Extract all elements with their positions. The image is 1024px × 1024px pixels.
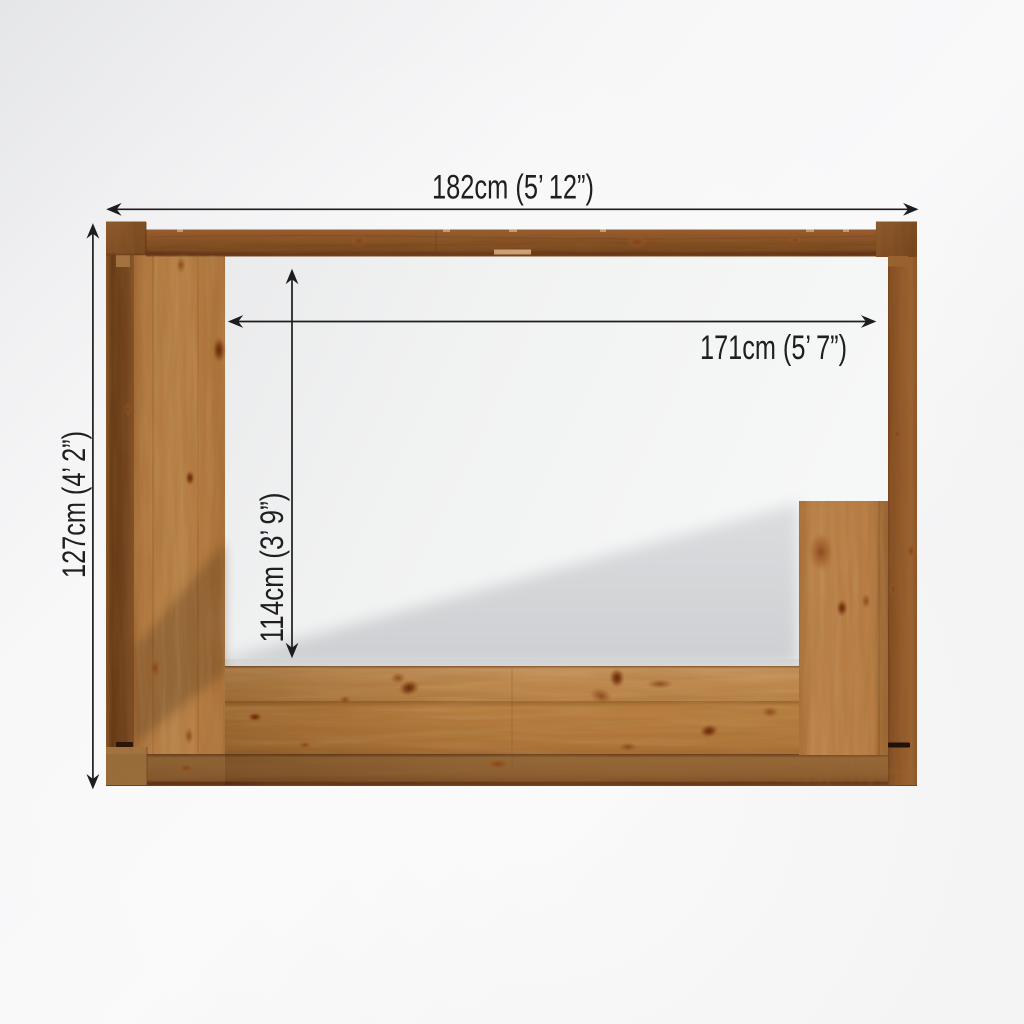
svg-text:114cm (3’ 9”): 114cm (3’ 9”)	[254, 493, 290, 643]
svg-text:171cm (5’ 7”): 171cm (5’ 7”)	[700, 329, 847, 367]
svg-text:182cm (5’ 12”): 182cm (5’ 12”)	[432, 169, 594, 207]
svg-text:127cm (4’ 2”): 127cm (4’ 2”)	[56, 431, 92, 578]
